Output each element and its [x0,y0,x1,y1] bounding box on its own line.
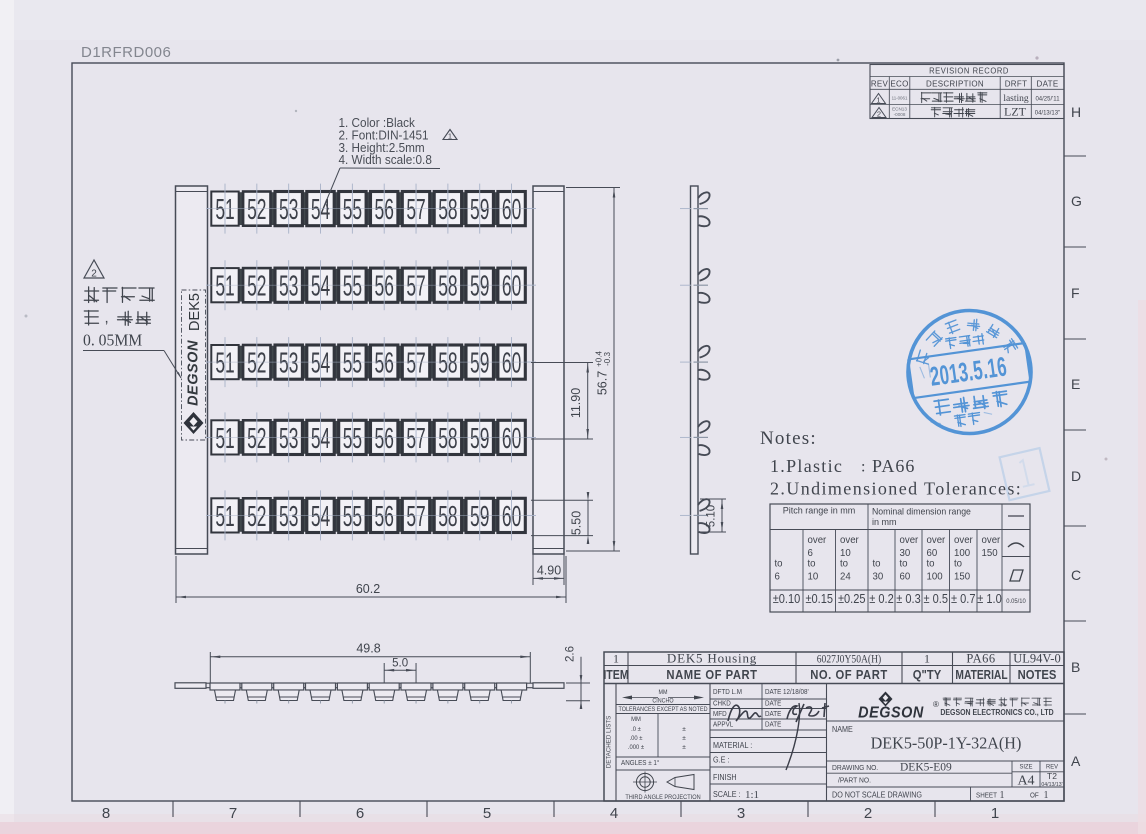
svg-text:to: to [775,558,783,569]
svg-text:58: 58 [438,194,457,227]
svg-text:± 0.5: ± 0.5 [924,591,949,606]
svg-text:55: 55 [343,422,362,455]
svg-text:to: to [900,558,908,569]
svg-text:DATE: DATE [765,700,782,707]
svg-text:to: to [954,558,962,569]
svg-text:NO. OF PART: NO. OF PART [810,667,888,682]
svg-text:over: over [808,535,827,546]
svg-text:6027J0Y50A(H): 6027J0Y50A(H) [817,653,882,666]
svg-text:100: 100 [927,571,943,582]
svg-text:5.0: 5.0 [392,658,408,670]
svg-text:± 0.2: ± 0.2 [869,591,894,606]
svg-text:53: 53 [279,422,298,455]
svg-text:MATERIAL :: MATERIAL : [713,741,752,750]
svg-text:150: 150 [982,548,998,559]
svg-text:1: 1 [1000,790,1005,801]
svg-text:60: 60 [900,571,911,582]
svg-text:60: 60 [502,347,521,380]
svg-text:54: 54 [311,347,330,380]
svg-text:D: D [1071,468,1081,484]
svg-text:56: 56 [375,500,394,533]
svg-text:±: ± [682,726,686,733]
svg-text:60.2: 60.2 [356,582,380,596]
svg-text:.000 ±: .000 ± [628,744,645,751]
svg-text:1: 1 [613,652,619,666]
svg-text:H: H [1071,104,1081,120]
svg-text:0.05/10: 0.05/10 [1006,598,1026,605]
svg-text:3: 3 [737,805,745,822]
svg-text:in mm: in mm [872,517,897,527]
svg-text:DEK5-E09: DEK5-E09 [900,762,952,774]
svg-text:to: to [808,558,816,569]
svg-text:DEK5: DEK5 [187,293,203,331]
svg-text:52: 52 [247,500,266,533]
svg-text:56.7: 56.7 [596,371,610,395]
svg-text:53: 53 [279,194,298,227]
svg-text:A4: A4 [1017,774,1034,789]
svg-text:52: 52 [247,347,266,380]
svg-text:57: 57 [406,347,425,380]
svg-text:49.8: 49.8 [356,642,380,656]
svg-text:57: 57 [406,500,425,533]
svg-text:60: 60 [502,194,521,227]
svg-text:56: 56 [375,422,394,455]
svg-text:1: 1 [448,131,452,140]
svg-text:2: 2 [91,269,97,280]
svg-text:REVISION RECORD: REVISION RECORD [929,66,1009,75]
svg-text:REV: REV [1046,763,1059,770]
svg-text:51: 51 [215,347,234,380]
svg-text:55: 55 [343,347,362,380]
svg-text:DEGSON ELECTRONICS CO., LTD: DEGSON ELECTRONICS CO., LTD [940,707,1054,717]
svg-text:MM: MM [631,716,641,723]
svg-text:57: 57 [406,270,425,303]
svg-text:7: 7 [229,805,237,822]
svg-text:DETACHED LISTS: DETACHED LISTS [606,716,613,769]
svg-text:Pitch range in mm: Pitch range in mm [783,505,856,515]
svg-text:8: 8 [102,805,110,822]
svg-text:5.50: 5.50 [570,511,584,535]
svg-text:NAME OF PART: NAME OF PART [666,667,757,682]
svg-text:OF: OF [1030,792,1039,799]
svg-text:REV: REV [871,79,889,88]
svg-text:DESCRIPTION: DESCRIPTION [926,79,984,88]
svg-text:11.90: 11.90 [569,388,583,418]
svg-text:to: to [873,558,881,569]
svg-text:30: 30 [873,571,884,582]
svg-text:60: 60 [502,500,521,533]
svg-text:11-0061: 11-0061 [892,96,908,101]
svg-text:®: ® [933,700,939,709]
svg-text:Q"TY: Q"TY [913,667,941,682]
svg-text:54: 54 [311,500,330,533]
svg-text:SIZE: SIZE [1020,763,1033,770]
svg-text:2.Undimensioned Tolerances:: 2.Undimensioned Tolerances: [770,479,1022,499]
svg-text:DATE: DATE [765,711,782,718]
svg-text:150: 150 [954,571,970,582]
svg-text:C: C [1071,567,1081,583]
svg-text:1: 1 [1044,790,1049,801]
svg-text:0. 05MM: 0. 05MM [83,332,142,349]
svg-text:ECO: ECO [890,79,908,88]
svg-text:F: F [1071,285,1080,301]
svg-text:53: 53 [279,500,298,533]
svg-text:PA66: PA66 [872,456,915,476]
svg-text:B: B [1071,659,1080,675]
svg-text:±0.15: ±0.15 [805,591,833,606]
svg-text:60: 60 [502,422,521,455]
svg-text:G.E :: G.E : [713,755,729,764]
svg-text:T2: T2 [1047,771,1057,781]
svg-text:59: 59 [470,347,489,380]
svg-text:6: 6 [775,571,781,582]
svg-text:± 0.3: ± 0.3 [896,591,921,606]
svg-text:Nominal dimension range: Nominal dimension range [872,506,971,516]
svg-text:to: to [840,558,848,569]
svg-text:DEGSON: DEGSON [186,340,202,406]
svg-text:PA66: PA66 [966,652,995,666]
svg-text:4: 4 [610,805,618,822]
svg-text:59: 59 [470,500,489,533]
svg-text:ANGLES ± 1°: ANGLES ± 1° [621,759,660,767]
svg-text:04/25/'11: 04/25/'11 [1035,97,1060,103]
svg-text:55: 55 [343,194,362,227]
svg-text:54: 54 [311,270,330,303]
svg-text::: : [861,459,865,476]
svg-text:1.Plastic: 1.Plastic [770,456,843,476]
svg-text:over: over [927,535,946,546]
svg-text:NAME: NAME [832,725,853,734]
svg-text:MM: MM [659,690,668,696]
svg-text:over: over [840,535,859,546]
svg-text:DATE: DATE [765,721,782,728]
svg-text:53: 53 [279,347,298,380]
svg-text:DEGSON: DEGSON [858,704,924,722]
svg-text:SHEET: SHEET [976,792,997,799]
svg-text:NOTES: NOTES [1018,667,1057,682]
svg-text:-0008: -0008 [894,112,906,117]
svg-text:D1RFRD006: D1RFRD006 [81,44,171,61]
svg-text:5.10: 5.10 [706,505,718,527]
svg-text:-0.3: -0.3 [603,352,612,366]
svg-text:to: to [927,558,935,569]
svg-text:58: 58 [438,422,457,455]
svg-text:1:1: 1:1 [745,789,759,801]
svg-text:DEK5 Housing: DEK5 Housing [667,651,757,666]
svg-text:over: over [900,535,919,546]
svg-text:24: 24 [840,571,851,582]
svg-text:58: 58 [438,270,457,303]
svg-text:MATERIAL: MATERIAL [955,669,1007,682]
svg-text:2.6: 2.6 [565,646,577,662]
svg-text:DRFT: DRFT [1005,79,1028,88]
svg-text:59: 59 [470,422,489,455]
svg-text:G: G [1071,193,1082,209]
svg-text:DFTD L.M: DFTD L.M [713,689,742,696]
svg-text:±: ± [682,744,686,751]
svg-text:1: 1 [991,805,999,822]
svg-text:57: 57 [406,422,425,455]
svg-text:6: 6 [356,805,364,822]
svg-text:±0.10: ±0.10 [773,591,801,606]
svg-text:Notes:: Notes: [760,428,817,449]
svg-text:MFD: MFD [713,711,727,718]
svg-text:58: 58 [438,500,457,533]
svg-text:51: 51 [215,422,234,455]
svg-text:52: 52 [247,422,266,455]
svg-text:,: , [105,310,109,327]
svg-text:DRAWING NO.: DRAWING NO. [832,764,878,772]
svg-text:±: ± [682,735,686,742]
svg-text:A: A [1071,753,1081,769]
svg-text:E: E [1071,376,1080,392]
svg-text:5: 5 [483,805,491,822]
svg-text:SCALE :: SCALE : [713,790,741,799]
svg-text:TOLERANCES EXCEPT AS NOTED: TOLERANCES EXCEPT AS NOTED [618,707,707,713]
svg-text:4. Width scale:0.8: 4. Width scale:0.8 [339,153,433,167]
svg-text:1: 1 [924,652,930,666]
svg-text:04/13/13": 04/13/13" [1035,111,1061,117]
svg-text:51: 51 [215,194,234,227]
svg-text:51: 51 [215,500,234,533]
svg-text:ECN13: ECN13 [892,107,907,112]
svg-text:±0.25: ±0.25 [838,591,866,606]
svg-text:UL94V-0: UL94V-0 [1013,652,1060,666]
svg-text:59: 59 [470,194,489,227]
svg-text:53: 53 [279,270,298,303]
svg-text:54: 54 [311,422,330,455]
svg-text:1: 1 [876,95,880,104]
svg-text:60: 60 [502,270,521,303]
svg-text:.0 ±: .0 ± [631,726,641,733]
svg-text:ITEM: ITEM [603,668,628,682]
svg-text:.00 ±: .00 ± [630,735,644,742]
svg-text:CHKD: CHKD [713,700,731,707]
svg-text:51: 51 [215,270,234,303]
svg-text:over: over [954,535,973,546]
svg-text:59: 59 [470,270,489,303]
svg-text:± 1.0: ± 1.0 [977,591,1002,606]
svg-text:± 0.7: ± 0.7 [951,591,976,606]
svg-text:over: over [982,535,1001,546]
svg-text:58: 58 [438,347,457,380]
svg-text:DEK5-50P-1Y-32A(H): DEK5-50P-1Y-32A(H) [871,733,1022,752]
svg-text:2: 2 [864,805,872,822]
svg-text:DATE 12/18/08': DATE 12/18/08' [765,689,809,696]
svg-text:CINCHO: CINCHO [652,698,674,704]
svg-text:56: 56 [375,270,394,303]
svg-text:52: 52 [247,270,266,303]
svg-text:56: 56 [375,194,394,227]
svg-text:DATE: DATE [1037,79,1059,88]
svg-text:DO NOT SCALE DRAWING: DO NOT SCALE DRAWING [832,790,922,799]
svg-text:56: 56 [375,347,394,380]
svg-text:4.90: 4.90 [537,564,561,578]
svg-text:55: 55 [343,500,362,533]
svg-text:FINISH: FINISH [713,773,737,782]
svg-text:lasting: lasting [1003,94,1029,104]
svg-text:APPVL: APPVL [713,721,734,728]
svg-text:57: 57 [406,194,425,227]
svg-text:LZT: LZT [1004,105,1027,119]
svg-text:52: 52 [247,194,266,227]
svg-text:10: 10 [808,571,819,582]
svg-text:2: 2 [877,109,881,118]
svg-text:/PART NO.: /PART NO. [838,776,871,784]
svg-text:55: 55 [343,270,362,303]
svg-text:THIRD ANGLE PROJECTION: THIRD ANGLE PROJECTION [625,795,700,801]
